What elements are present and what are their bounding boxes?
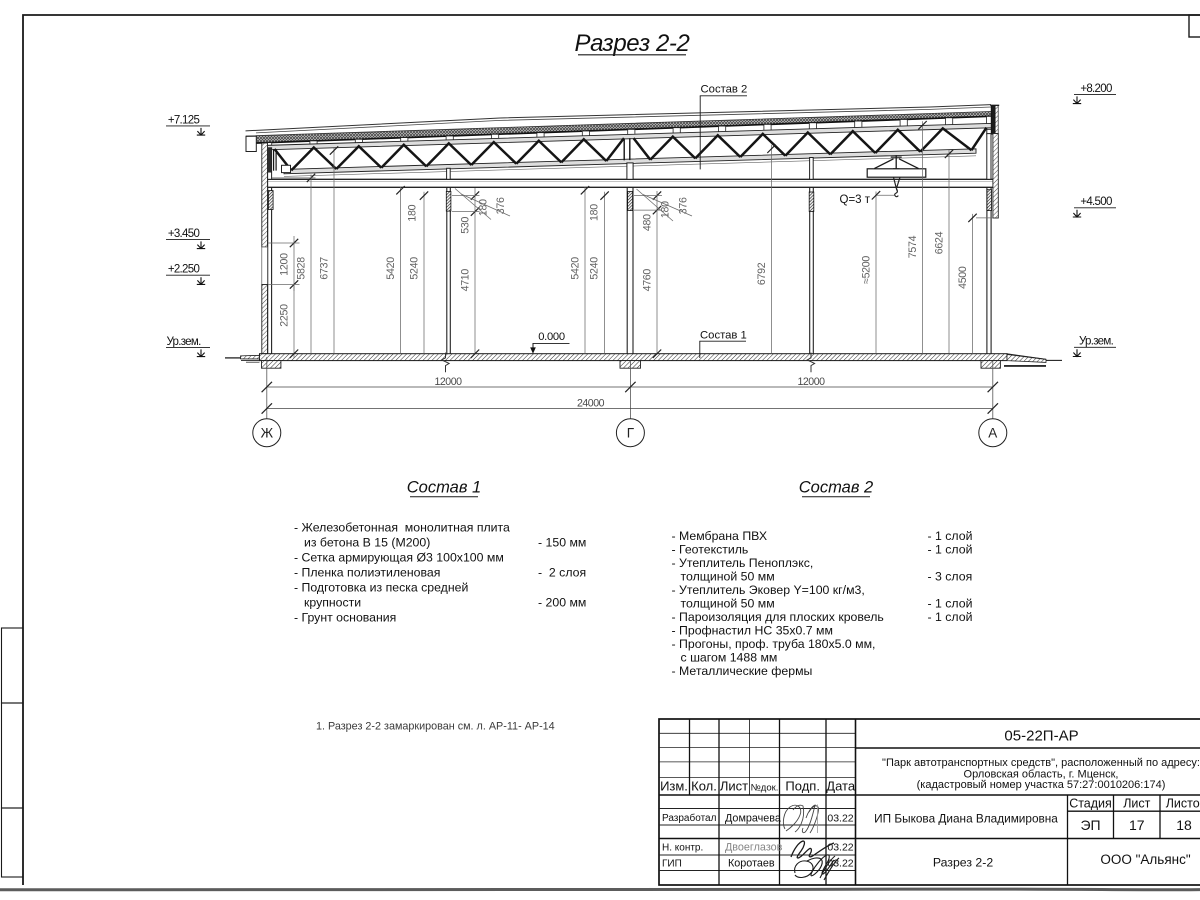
svg-text:530: 530 — [460, 217, 472, 234]
svg-text:+7.125: +7.125 — [168, 114, 200, 126]
svg-text:(кадастровый номер участка 57:: (кадастровый номер участка 57:27:0010206… — [917, 779, 1166, 791]
svg-text:180: 180 — [407, 204, 419, 221]
svg-text:Подп.: Подп. — [785, 779, 820, 794]
svg-text:Изм.: Изм. — [660, 779, 688, 794]
svg-text:4710: 4710 — [460, 269, 472, 292]
svg-text:- Железобетонная монолитная п: - Железобетонная монолитная плита — [294, 521, 510, 535]
svg-text:- Сетка армирующая Ø3 100х100: - Сетка армирующая Ø3 100х100 мм — [294, 551, 504, 565]
svg-text:Ур.зем.: Ур.зем. — [1079, 336, 1114, 348]
svg-text:Ж: Ж — [261, 426, 274, 441]
svg-text:Стадия: Стадия — [1069, 796, 1112, 810]
svg-text:5420: 5420 — [569, 257, 581, 280]
svg-text:- 150 мм: - 150 мм — [538, 536, 586, 550]
svg-text:- 1 слой: - 1 слой — [928, 597, 973, 611]
svg-text:Ур.зем.: Ур.зем. — [166, 336, 201, 348]
svg-text:18: 18 — [1176, 817, 1192, 833]
svg-text:- 1 слой: - 1 слой — [928, 529, 973, 543]
svg-text:1200: 1200 — [279, 253, 291, 276]
svg-text:≈5200: ≈5200 — [861, 256, 873, 284]
svg-text:Разрез 2-2: Разрез 2-2 — [575, 30, 690, 57]
svg-text:376: 376 — [677, 197, 689, 214]
svg-text:Домрачева: Домрачева — [725, 812, 781, 824]
svg-text:Н. контр.: Н. контр. — [662, 842, 703, 853]
svg-text:толщиной 50 мм: толщиной 50 мм — [681, 597, 775, 611]
svg-text:- 1 слой: - 1 слой — [928, 543, 973, 557]
svg-text:7574: 7574 — [907, 235, 919, 258]
svg-text:+3.450: +3.450 — [168, 228, 200, 240]
svg-text:- Металлические фермы: - Металлические фермы — [672, 664, 813, 678]
svg-text:Лист: Лист — [720, 779, 748, 794]
svg-text:- 200 мм: - 200 мм — [538, 596, 586, 610]
svg-text:- Подготовка из песка средней: - Подготовка из песка средней — [294, 581, 468, 595]
svg-text:"Парк автотранспортных средств: "Парк автотранспортных средств", располо… — [882, 757, 1200, 769]
svg-text:180: 180 — [589, 204, 601, 221]
svg-text:- 1 слой: - 1 слой — [928, 610, 973, 624]
svg-text:4760: 4760 — [641, 269, 653, 292]
svg-text:376: 376 — [495, 197, 507, 214]
svg-text:480: 480 — [641, 214, 653, 231]
svg-text:Двоеглазов: Двоеглазов — [725, 841, 783, 853]
svg-text:+8.200: +8.200 — [1080, 83, 1112, 95]
svg-text:+2.250: +2.250 — [168, 264, 200, 276]
svg-text:- Геотекстиль: - Геотекстиль — [672, 543, 749, 557]
svg-text:5828: 5828 — [296, 257, 308, 280]
svg-text:6737: 6737 — [319, 257, 331, 280]
svg-text:+4.500: +4.500 — [1080, 196, 1112, 208]
svg-text:05-22П-АР: 05-22П-АР — [1004, 728, 1078, 745]
svg-text:из бетона В 15 (М200): из бетона В 15 (М200) — [304, 536, 430, 550]
svg-text:с шагом 1488 мм: с шагом 1488 мм — [681, 651, 778, 665]
svg-text:ЭП: ЭП — [1080, 817, 1100, 833]
svg-text:- Мембрана ПВХ: - Мембрана ПВХ — [672, 529, 768, 543]
svg-text:№док.: №док. — [751, 783, 779, 794]
svg-text:крупности: крупности — [304, 596, 361, 610]
svg-text:Дата: Дата — [826, 779, 856, 794]
svg-text:- Профнастил НС 35х0.7 мм: - Профнастил НС 35х0.7 мм — [672, 624, 833, 638]
svg-text:Состав 2: Состав 2 — [799, 479, 873, 497]
svg-text:12000: 12000 — [798, 376, 826, 388]
svg-text:1. Разрез 2-2 замаркирован см.: 1. Разрез 2-2 замаркирован см. л. АР-11-… — [316, 721, 555, 733]
svg-text:Кол.: Кол. — [691, 779, 717, 794]
svg-text:6792: 6792 — [756, 262, 768, 285]
svg-text:- Утеплитель Эковер Y=100 кг/м: - Утеплитель Эковер Y=100 кг/м3, — [672, 583, 865, 597]
svg-text:Лист: Лист — [1123, 796, 1150, 810]
svg-text:17: 17 — [1129, 817, 1145, 833]
svg-text:- Прогоны, проф. труба 180х5.0: - Прогоны, проф. труба 180х5.0 мм, — [672, 637, 876, 651]
svg-text:24000: 24000 — [577, 398, 605, 410]
svg-text:6624: 6624 — [934, 231, 946, 254]
svg-text:12000: 12000 — [435, 376, 463, 388]
svg-text:Разработал: Разработал — [662, 812, 717, 824]
svg-text:Разрез 2-2: Разрез 2-2 — [933, 856, 994, 870]
svg-text:5420: 5420 — [385, 257, 397, 280]
svg-text:Состав 1: Состав 1 — [407, 479, 481, 497]
svg-text:- Утеплитель Пеноплэкс,: - Утеплитель Пеноплэкс, — [672, 556, 814, 570]
svg-text:4500: 4500 — [957, 266, 969, 289]
svg-text:- Грунт основания: - Грунт основания — [294, 611, 396, 625]
svg-text:Состав 1: Состав 1 — [700, 330, 747, 342]
svg-text:ГИП: ГИП — [662, 859, 682, 870]
svg-text:5240: 5240 — [409, 257, 421, 280]
svg-text:ООО "Альянс": ООО "Альянс" — [1100, 852, 1190, 867]
svg-text:- Пароизоляция для плоских кро: - Пароизоляция для плоских кровель — [672, 610, 884, 624]
svg-text:180: 180 — [660, 201, 672, 218]
svg-text:Коротаев: Коротаев — [728, 858, 775, 870]
svg-text:А: А — [988, 426, 997, 441]
svg-text:- 2 слоя: - 2 слоя — [538, 566, 586, 580]
svg-text:Состав 2: Состав 2 — [701, 84, 748, 96]
svg-text:2250: 2250 — [279, 304, 291, 327]
svg-text:Листов: Листов — [1166, 796, 1200, 810]
svg-text:Г: Г — [627, 426, 635, 441]
svg-text:03.22: 03.22 — [827, 812, 853, 824]
svg-text:ИП Быкова Диана Владимировна: ИП Быкова Диана Владимировна — [874, 812, 1058, 826]
svg-text:Q=3 т: Q=3 т — [840, 194, 871, 206]
svg-text:толщиной 50 мм: толщиной 50 мм — [681, 570, 775, 584]
svg-text:5240: 5240 — [589, 257, 601, 280]
svg-text:03.22: 03.22 — [827, 841, 853, 853]
svg-text:- 3 слоя: - 3 слоя — [928, 570, 973, 584]
svg-text:0.000: 0.000 — [538, 331, 565, 343]
svg-text:- Пленка полиэтиленовая: - Пленка полиэтиленовая — [294, 566, 440, 580]
